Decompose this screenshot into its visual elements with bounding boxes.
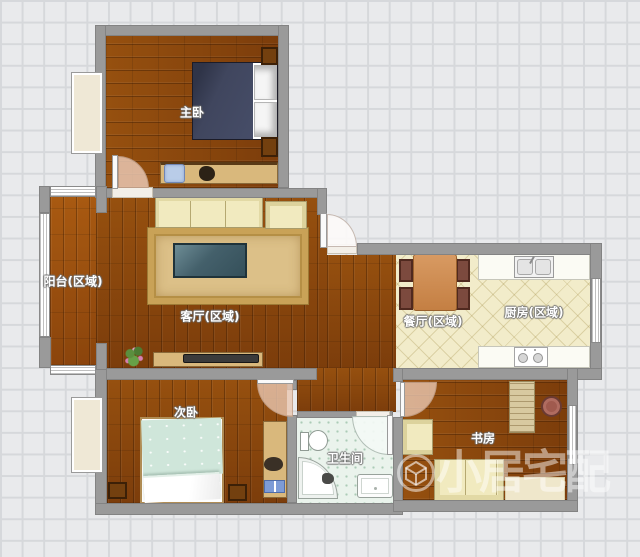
balcony-pillar — [39, 186, 50, 213]
toilet-bowl[interactable] — [308, 430, 328, 451]
dining-chair[interactable] — [456, 287, 470, 310]
door-opening — [112, 187, 153, 198]
dining-chair[interactable] — [399, 287, 413, 310]
master-bed-pillow — [254, 65, 277, 100]
armchair[interactable] — [265, 201, 307, 229]
dining-chair[interactable] — [399, 259, 413, 282]
wall — [393, 500, 578, 512]
wall — [95, 25, 289, 36]
wall — [278, 25, 289, 188]
wall — [357, 243, 602, 255]
desk-accessories — [264, 480, 285, 493]
study-window[interactable] — [568, 405, 577, 465]
master-bedroom-door[interactable] — [112, 155, 118, 189]
stove-burner — [518, 353, 528, 363]
tv[interactable] — [183, 354, 259, 363]
stove-knob — [534, 349, 536, 351]
balcony-window[interactable] — [50, 186, 96, 197]
wall — [393, 368, 403, 382]
room-label-master-bedroom: 主卧 — [180, 104, 204, 121]
wall — [317, 188, 327, 215]
balcony-pillar — [96, 343, 107, 370]
balcony-pillar — [39, 337, 51, 368]
room-label-living-room: 客厅(区域) — [181, 308, 240, 325]
master-bed-duvet — [193, 63, 253, 139]
wall — [393, 417, 403, 503]
nightstand[interactable] — [261, 137, 278, 157]
second-bedroom-door[interactable] — [257, 379, 294, 384]
nightstand[interactable] — [108, 482, 127, 499]
bookshelf[interactable] — [509, 381, 535, 433]
room-label-balcony: 阳台(区域) — [44, 273, 103, 290]
study-sofa[interactable] — [434, 459, 504, 501]
round-stool[interactable] — [541, 396, 562, 417]
potted-plant[interactable] — [122, 344, 145, 368]
dresser-mirror[interactable] — [164, 164, 185, 183]
sofa[interactable] — [155, 197, 263, 228]
nightstand[interactable] — [228, 484, 247, 501]
balcony-window[interactable] — [50, 365, 96, 375]
second-bedroom-window[interactable] — [72, 398, 102, 472]
kitchen-window[interactable] — [591, 278, 601, 343]
sink-basin — [535, 259, 551, 275]
balcony-pillar — [96, 186, 107, 213]
floorplan-canvas: 主卧 阳台(区域) 客厅(区域) 餐厅(区域) 厨房(区域) 次卧 卫生间 书房… — [0, 0, 640, 557]
wall — [287, 415, 297, 503]
handbag[interactable] — [199, 166, 215, 181]
master-bed-pillow — [254, 102, 277, 137]
nightstand[interactable] — [261, 47, 278, 65]
room-label-bathroom: 卫生间 — [327, 450, 363, 467]
study-armchair[interactable] — [402, 419, 433, 455]
dining-table[interactable] — [413, 254, 457, 311]
bathroom-door[interactable] — [387, 415, 393, 455]
master-bedroom-window[interactable] — [72, 73, 102, 153]
entry-door-swing[interactable] — [327, 214, 357, 247]
room-label-second-bedroom: 次卧 — [174, 404, 198, 421]
wall — [95, 503, 403, 515]
second-bed-blanket — [141, 418, 223, 477]
second-bed-sheet — [143, 472, 220, 503]
stove-burner — [533, 353, 543, 363]
stove-knob — [524, 349, 526, 351]
coffee-table[interactable] — [173, 243, 247, 278]
desk-chair[interactable] — [264, 457, 283, 471]
room-label-study: 书房 — [471, 430, 495, 447]
room-floor-living-entry[interactable] — [327, 255, 396, 368]
room-label-dining: 餐厅(区域) — [404, 313, 463, 330]
shower-head — [322, 473, 334, 484]
bathtub-drain — [374, 487, 377, 490]
room-label-kitchen: 厨房(区域) — [505, 304, 564, 321]
dining-chair[interactable] — [456, 259, 470, 282]
entry-door[interactable] — [320, 213, 327, 248]
study-door[interactable] — [400, 382, 405, 417]
bathtub[interactable] — [357, 474, 393, 498]
